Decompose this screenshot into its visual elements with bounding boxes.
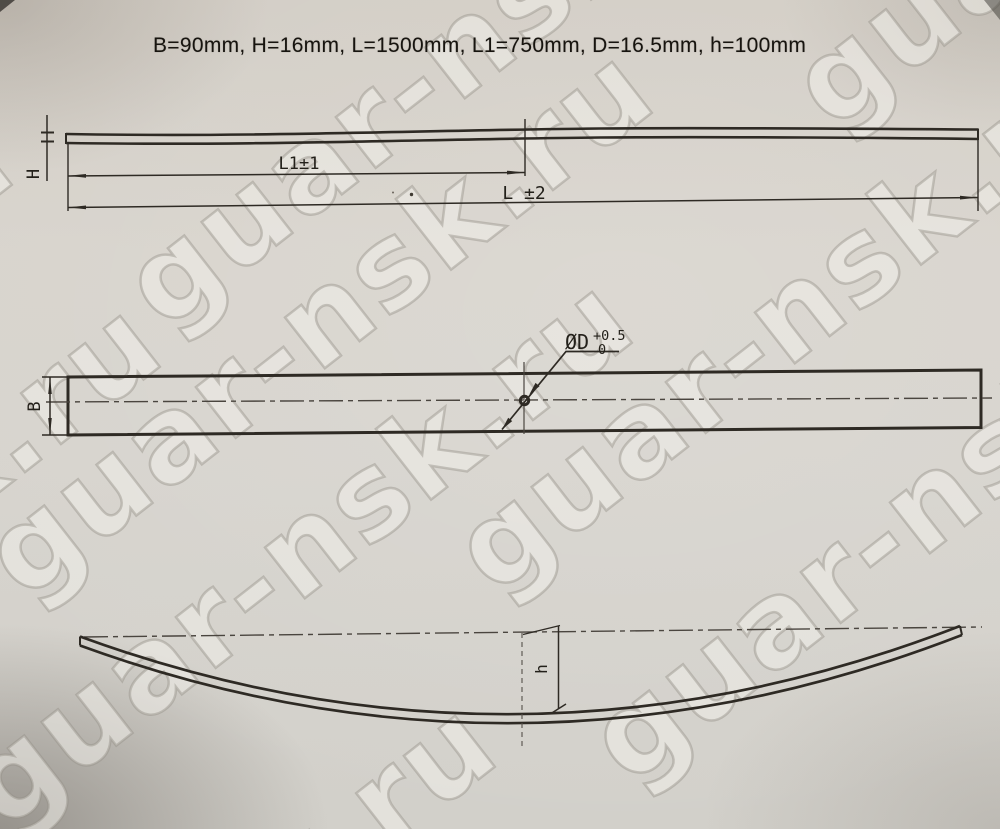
hole-diameter-label: ØD bbox=[565, 330, 589, 354]
arrowhead bbox=[48, 377, 52, 394]
arrowhead bbox=[68, 206, 86, 210]
thickness-label: H bbox=[24, 169, 44, 179]
scan-speck bbox=[392, 192, 394, 194]
width-label: B bbox=[25, 401, 45, 411]
flat-leaf-top-edge bbox=[66, 128, 978, 135]
camber-label: h bbox=[532, 664, 551, 674]
side-view-flat: H L1±1 L ±2 bbox=[24, 115, 978, 211]
curved-leaf-top-edge bbox=[80, 626, 960, 714]
plan-view: B ØD +0.5 0 bbox=[25, 328, 992, 435]
camber-top-connector bbox=[523, 626, 560, 635]
arrowhead bbox=[507, 171, 525, 175]
flat-leaf-bottom-edge bbox=[66, 137, 978, 144]
total-length-label: L ±2 bbox=[502, 183, 545, 204]
half-length-label: L1±1 bbox=[279, 154, 320, 174]
scan-corner-artifact bbox=[984, 0, 1000, 20]
arrowhead bbox=[48, 418, 52, 435]
hole-tolerance-lower: 0 bbox=[598, 342, 606, 358]
scan-corner-artifact bbox=[0, 0, 15, 12]
side-view-curved: h bbox=[80, 626, 982, 749]
scan-speck bbox=[410, 193, 413, 196]
hole-leader-line bbox=[502, 352, 619, 430]
arrowhead bbox=[960, 196, 978, 200]
scanned-technical-drawing: guar-nsk.ru guar-nsk.ru guar-nsk.ru guar… bbox=[0, 0, 1000, 829]
drawing-parameters-title: B=90mm, H=16mm, L=1500mm, L1=750mm, D=16… bbox=[153, 34, 806, 58]
curved-leaf-bottom-edge bbox=[80, 635, 962, 723]
leaf-spring-drawing: H L1±1 L ±2 B ØD +0.5 0 bbox=[0, 0, 1000, 829]
arrowhead bbox=[68, 174, 86, 178]
